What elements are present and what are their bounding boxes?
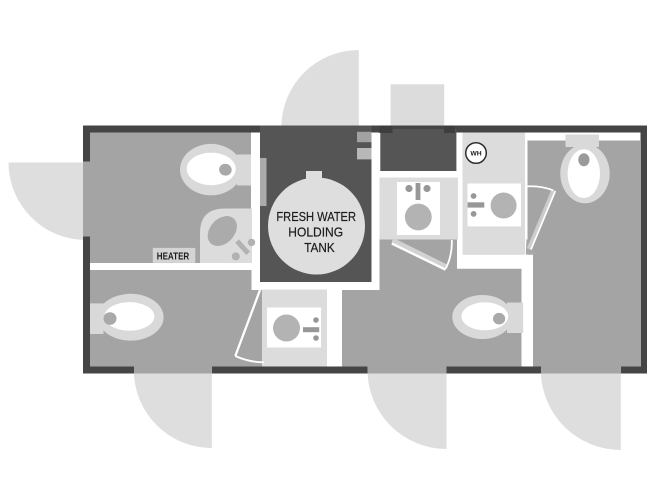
svg-text:TANK: TANK — [304, 240, 335, 255]
svg-text:FRESH WATER: FRESH WATER — [276, 209, 356, 224]
svg-text:HEATER: HEATER — [157, 252, 190, 263]
svg-text:HOLDING: HOLDING — [288, 225, 343, 240]
svg-text:WH: WH — [470, 151, 481, 158]
